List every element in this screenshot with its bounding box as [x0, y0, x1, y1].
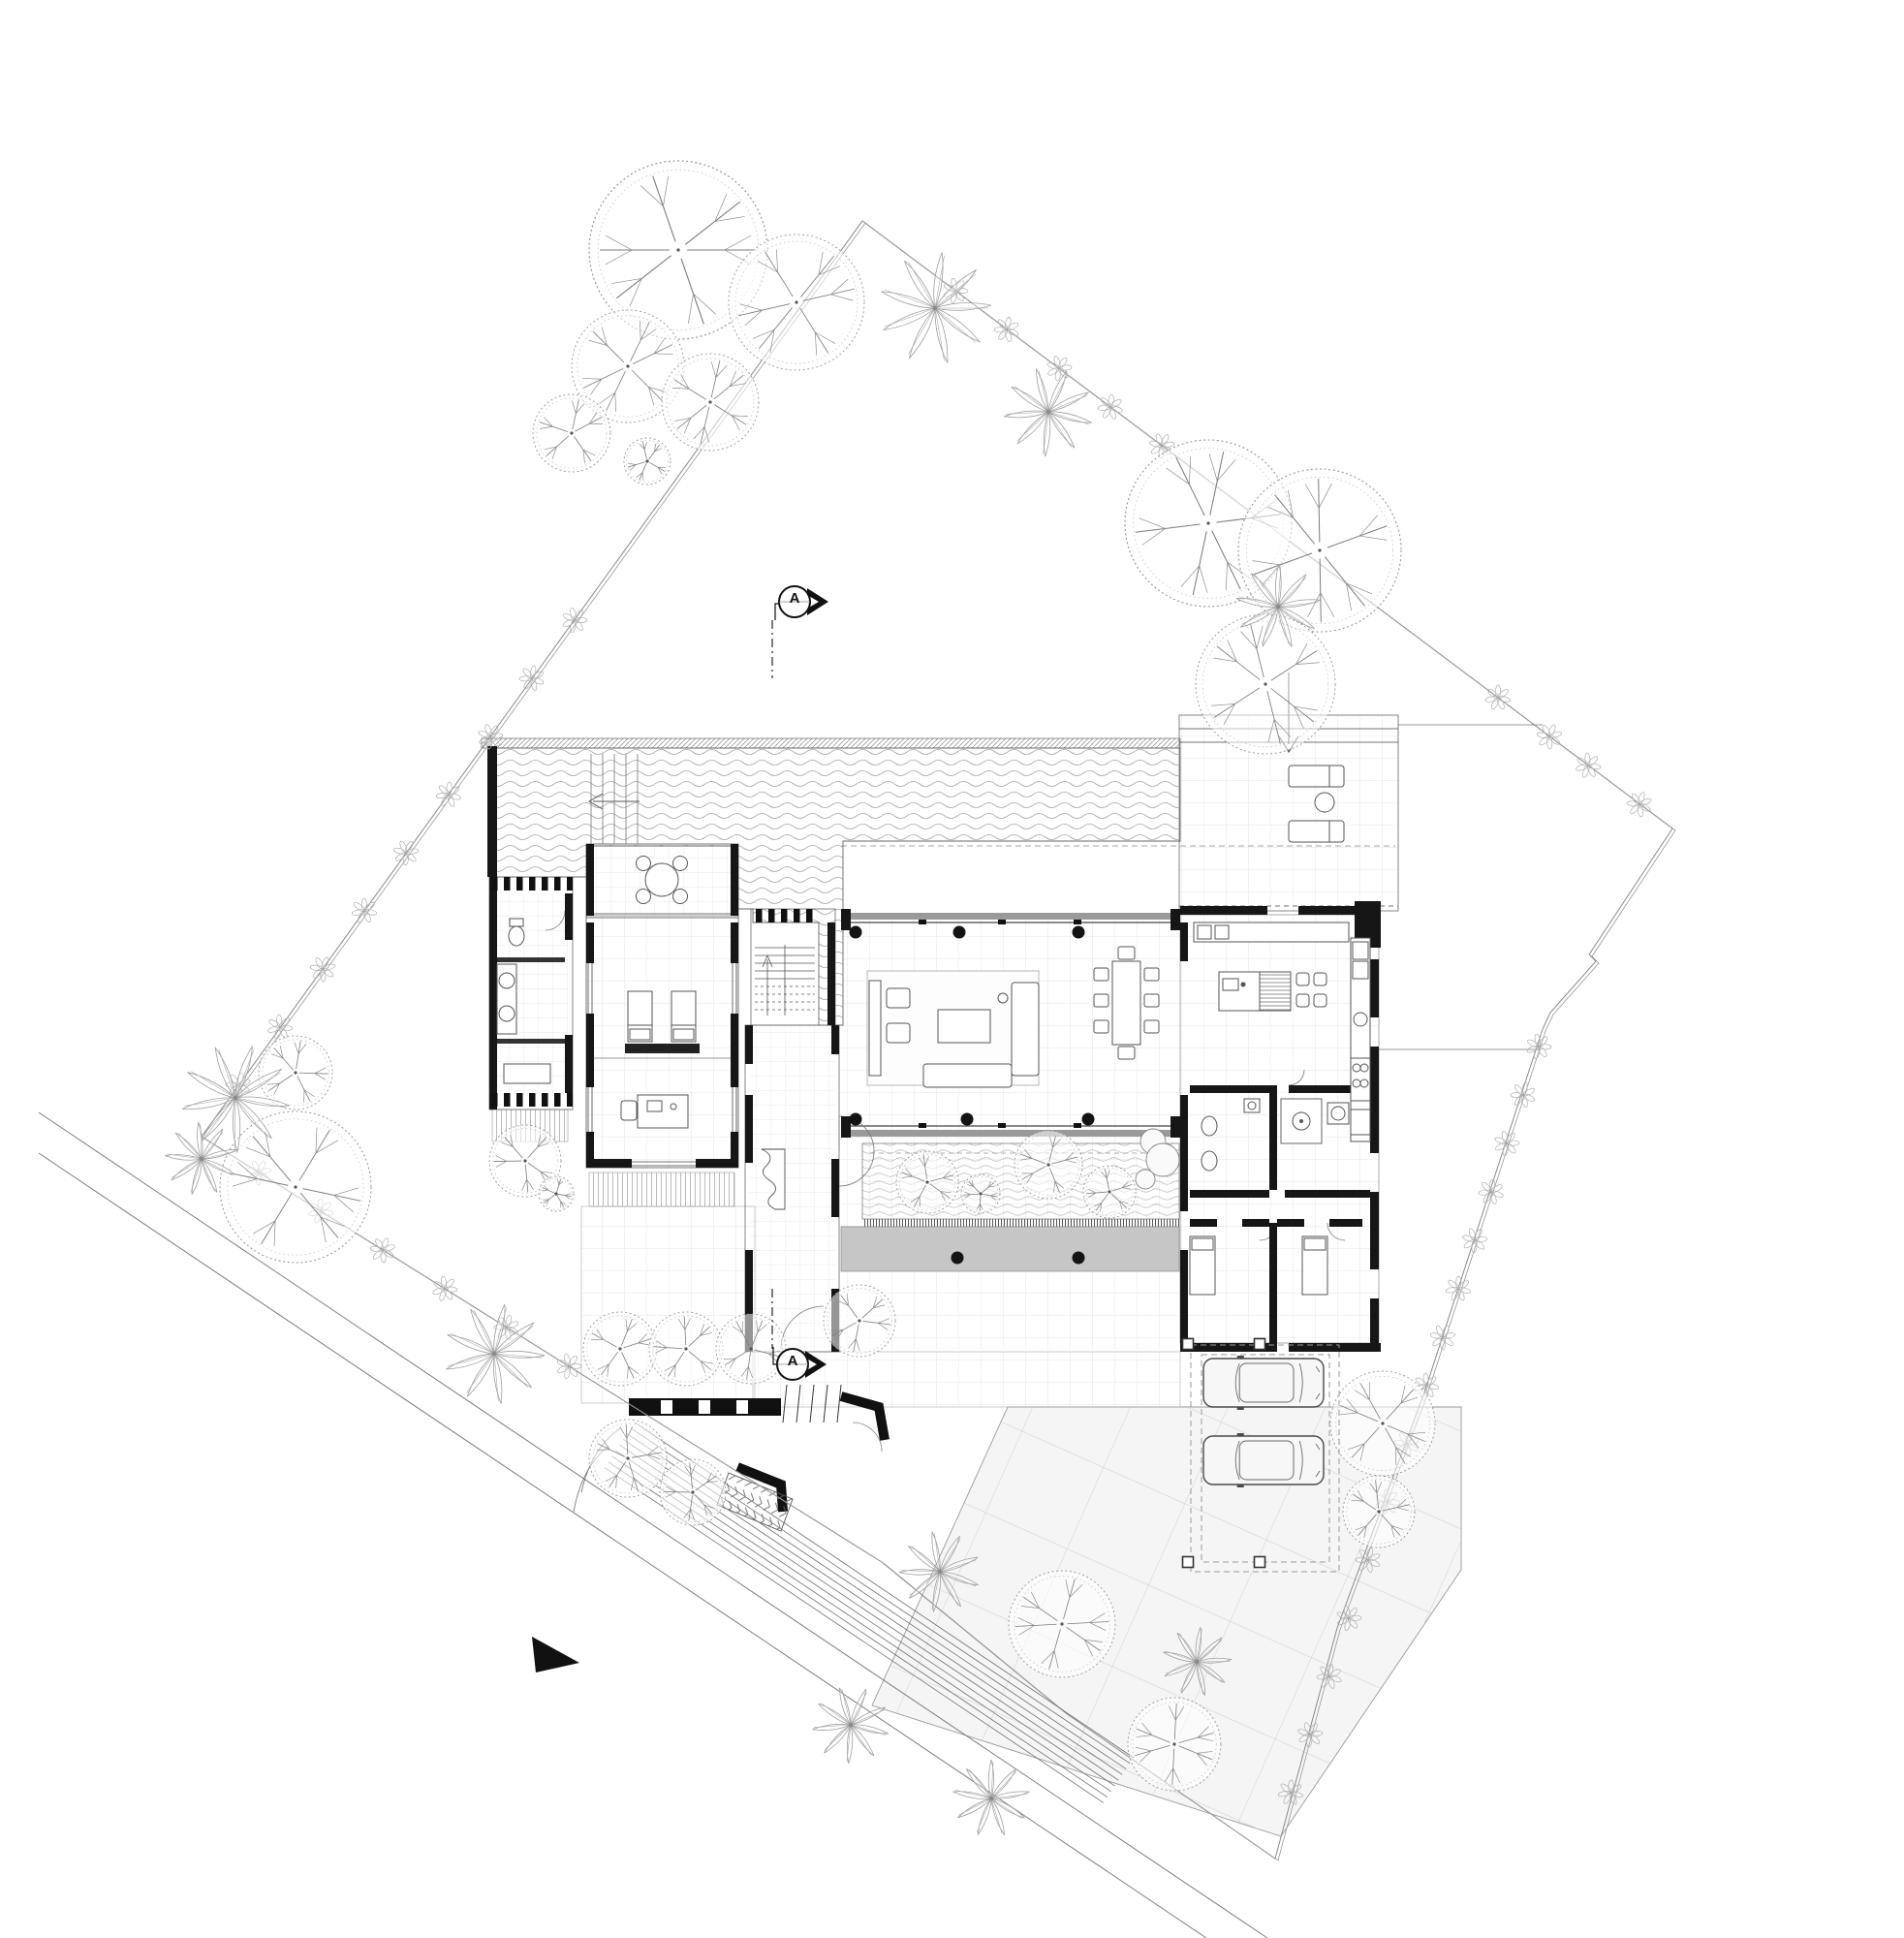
vanity — [497, 964, 516, 1034]
page: AA — [0, 0, 1904, 1938]
tree-icon — [1009, 1571, 1115, 1677]
carport-post — [1255, 1339, 1265, 1350]
tree-icon — [1343, 1476, 1415, 1547]
carport-post — [1183, 1339, 1194, 1350]
shrub-icon — [1479, 1179, 1504, 1204]
boulder — [1136, 1170, 1155, 1189]
shrub-icon — [393, 840, 419, 865]
bed — [671, 991, 696, 1042]
tree-icon — [716, 1314, 786, 1384]
column — [1073, 926, 1085, 939]
sun-lounger — [1289, 821, 1344, 842]
tree-icon — [1128, 1698, 1221, 1791]
car — [1203, 1433, 1324, 1487]
tree-icon — [662, 354, 759, 451]
section-a-top: A — [772, 586, 828, 678]
tree-icon — [896, 1151, 958, 1213]
shrub-icon — [1526, 1034, 1551, 1059]
side-table — [1315, 793, 1334, 812]
tree-icon — [1083, 1166, 1136, 1218]
tree-icon — [1014, 1131, 1082, 1199]
tree-icon — [259, 1036, 332, 1110]
shrub-icon — [1098, 394, 1123, 420]
shrub-icon — [556, 1354, 581, 1380]
covered-walkway — [841, 1227, 1179, 1271]
tree-icon — [649, 1312, 723, 1386]
study-porch-deck — [589, 1172, 734, 1206]
shrub-icon — [1494, 1131, 1519, 1156]
pool-top-band — [482, 738, 1180, 748]
shrub-icon — [352, 898, 378, 923]
carport-post — [1183, 1557, 1194, 1568]
carport-post — [1255, 1557, 1265, 1568]
shrub-icon — [1485, 685, 1512, 710]
shrub-icon — [370, 1237, 395, 1263]
shrub-icon — [1537, 724, 1562, 749]
column — [850, 1113, 862, 1126]
palm-icon — [881, 252, 991, 364]
shrub-icon — [432, 1276, 457, 1301]
tree-icon — [539, 1176, 574, 1211]
garden-edge-band — [862, 1219, 1179, 1227]
tree-icon — [220, 1111, 371, 1263]
bed — [1190, 1236, 1215, 1295]
hall-floor — [749, 1025, 835, 1352]
bedroom-floor — [586, 916, 738, 1058]
tree-icon — [589, 1420, 667, 1497]
column — [1082, 1113, 1095, 1126]
bath-bench — [504, 1064, 550, 1083]
tree-icon — [961, 1174, 1000, 1213]
section-marker-label: A — [788, 1353, 798, 1369]
entry-structure — [532, 1385, 885, 1672]
toilet — [509, 919, 524, 946]
shrub-icon — [994, 317, 1019, 342]
bed — [628, 991, 652, 1042]
shrub-icon — [1446, 1276, 1471, 1301]
palm-icon — [1004, 368, 1092, 456]
shrub-icon — [1627, 792, 1652, 817]
shrub-icon — [310, 956, 335, 982]
shrub-icon — [1046, 356, 1072, 381]
bed-headboard — [625, 1044, 700, 1053]
column — [953, 926, 966, 939]
shrub-icon — [519, 666, 545, 691]
tree-icon — [729, 234, 864, 370]
column — [952, 1252, 964, 1265]
tree-icon — [660, 1459, 726, 1525]
shrub-icon — [562, 608, 587, 634]
living-set — [867, 971, 1039, 1087]
tree-icon — [533, 394, 610, 472]
shrub-icon — [1511, 1082, 1536, 1109]
shrub-icon — [1576, 753, 1601, 778]
bed — [1302, 1236, 1327, 1295]
car — [1203, 1356, 1324, 1410]
tree-icon — [824, 1285, 895, 1357]
shrub-icon — [436, 782, 461, 807]
column — [850, 926, 862, 939]
palm-icon — [445, 1303, 545, 1403]
tree-icon — [583, 1312, 657, 1386]
sun-lounger — [1289, 766, 1344, 787]
tree-icon — [1238, 469, 1401, 632]
site-plan-svg: AA — [0, 0, 1904, 1938]
tree-icon — [1330, 1371, 1435, 1476]
tree-icon — [624, 438, 671, 484]
column — [961, 1113, 974, 1126]
column — [1073, 1252, 1085, 1265]
section-marker-label: A — [790, 590, 800, 607]
